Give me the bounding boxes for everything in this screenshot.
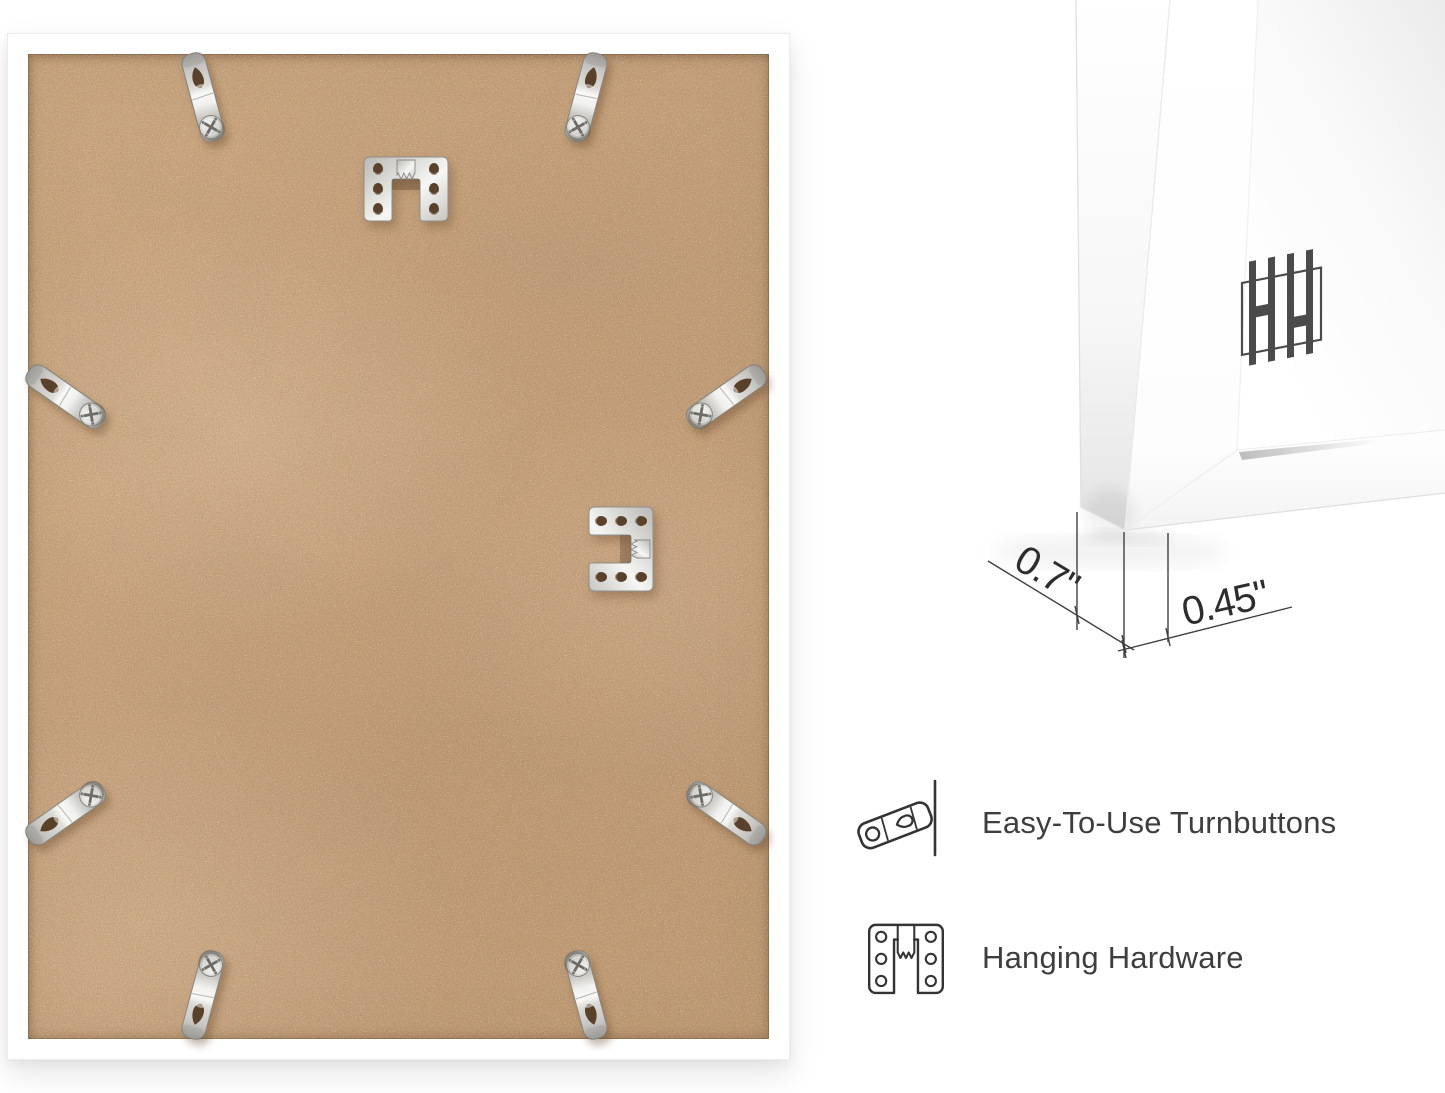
feature-label: Hanging Hardware: [982, 940, 1244, 976]
feature-hanging-hardware: Hanging Hardware: [856, 908, 1244, 1008]
turnbutton: [51, 347, 87, 451]
sawtooth-hanger: [362, 155, 450, 223]
turnbutton: [705, 759, 741, 863]
turnbutton: [186, 49, 222, 153]
mdf-backing-board: [28, 54, 769, 1039]
sawtooth-hanger: [577, 515, 665, 583]
frame-corner-view: 0.7" 0.45": [960, 0, 1445, 660]
turnbutton: [567, 49, 603, 153]
feature-label: Easy-To-Use Turnbuttons: [982, 805, 1336, 841]
frame-corner-graphic: 0.7" 0.45": [960, 0, 1445, 660]
turnbutton-icon: [856, 773, 956, 873]
turnbutton: [51, 759, 87, 863]
hanging-hardware-icon: [856, 908, 956, 1008]
turnbutton: [705, 347, 741, 451]
frame-white-border: [7, 33, 790, 1060]
frame-face-dimension: 0.45": [1178, 572, 1273, 634]
feature-turnbuttons: Easy-To-Use Turnbuttons: [856, 773, 1336, 873]
frame-mat-area: [1237, 0, 1445, 450]
turnbutton: [186, 939, 222, 1043]
frame-back-photo: [0, 0, 810, 1093]
turnbutton: [567, 939, 603, 1043]
product-image: 0.7" 0.45" Easy-To-Use Turnbuttons: [0, 0, 1445, 1093]
